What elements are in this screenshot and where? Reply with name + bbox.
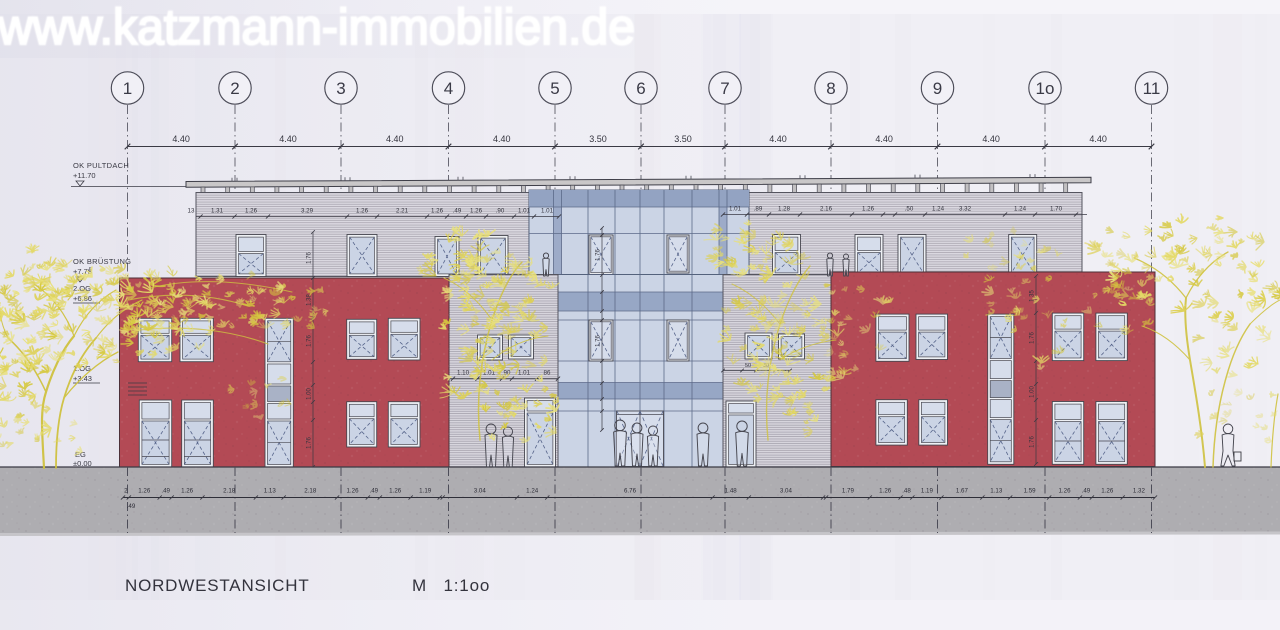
svg-text:3.50: 3.50 — [674, 134, 692, 144]
svg-text:1.26: 1.26 — [879, 488, 892, 495]
svg-text:1.48: 1.48 — [725, 488, 738, 495]
svg-text:.49: .49 — [127, 503, 136, 510]
svg-text:4.40: 4.40 — [172, 134, 190, 144]
svg-text:OK PULTDACH: OK PULTDACH — [73, 161, 129, 170]
svg-text:1.76: 1.76 — [596, 335, 602, 347]
svg-text:3.04: 3.04 — [474, 488, 487, 495]
svg-text:4.40: 4.40 — [982, 134, 1000, 144]
svg-text:1.26: 1.26 — [389, 488, 402, 495]
svg-text:4.40: 4.40 — [769, 134, 787, 144]
svg-text:1.59: 1.59 — [1024, 488, 1037, 495]
svg-text:1.24: 1.24 — [1014, 206, 1027, 213]
svg-text:1.26: 1.26 — [245, 208, 258, 215]
svg-text:1.76: 1.76 — [1030, 332, 1036, 344]
svg-text:3.32: 3.32 — [959, 206, 972, 213]
svg-text:1.01: 1.01 — [518, 208, 531, 215]
svg-text:3.29: 3.29 — [301, 208, 314, 215]
svg-text:.50: .50 — [905, 206, 914, 213]
svg-text:7: 7 — [720, 79, 729, 98]
svg-text:6.76: 6.76 — [624, 488, 637, 495]
svg-text:1.28: 1.28 — [778, 206, 791, 213]
svg-text:1.13: 1.13 — [990, 488, 1003, 495]
svg-text:9: 9 — [933, 79, 942, 98]
svg-text:1.26: 1.26 — [346, 488, 359, 495]
svg-text:2: 2 — [124, 488, 128, 495]
svg-text:1.10: 1.10 — [457, 370, 470, 377]
svg-text:1.26: 1.26 — [470, 208, 483, 215]
svg-text:4: 4 — [444, 79, 453, 98]
svg-text:1.24: 1.24 — [526, 488, 539, 495]
svg-text:1.26: 1.26 — [138, 488, 151, 495]
svg-text:OK BRÜSTUNG: OK BRÜSTUNG — [73, 257, 131, 266]
svg-text:1.01: 1.01 — [541, 208, 554, 215]
svg-text:www.katzmann-immobilien.de: www.katzmann-immobilien.de — [0, 0, 635, 55]
svg-text:1.26: 1.26 — [1058, 488, 1071, 495]
svg-text:1.00: 1.00 — [307, 388, 313, 400]
svg-text:1.19: 1.19 — [921, 488, 934, 495]
svg-text:.89: .89 — [754, 206, 763, 213]
svg-text:.49: .49 — [161, 488, 170, 495]
svg-text:1o: 1o — [1036, 79, 1055, 98]
svg-text:5: 5 — [550, 79, 559, 98]
svg-text:1.26: 1.26 — [862, 206, 875, 213]
svg-text:1.26: 1.26 — [1101, 488, 1114, 495]
svg-text:2.18: 2.18 — [304, 488, 317, 495]
svg-text:2: 2 — [230, 79, 239, 98]
svg-text:11: 11 — [1143, 79, 1161, 98]
svg-text:1.24: 1.24 — [932, 206, 945, 213]
svg-text:1.26: 1.26 — [181, 488, 194, 495]
svg-text:4.40: 4.40 — [1089, 134, 1107, 144]
svg-text:1.01: 1.01 — [518, 370, 531, 377]
svg-text:3: 3 — [336, 79, 345, 98]
svg-text:M 1:1oo: M 1:1oo — [412, 576, 490, 595]
svg-text:1.76: 1.76 — [307, 252, 313, 264]
svg-text:1.19: 1.19 — [419, 488, 432, 495]
svg-text:1.70: 1.70 — [1050, 206, 1063, 213]
svg-text:.90: .90 — [496, 208, 505, 215]
svg-text:1: 1 — [123, 79, 132, 98]
svg-text:8: 8 — [826, 79, 835, 98]
svg-text:1.79: 1.79 — [842, 488, 855, 495]
svg-text:1.76: 1.76 — [307, 335, 313, 347]
svg-text:1.76: 1.76 — [596, 249, 602, 261]
svg-text:1.67: 1.67 — [956, 488, 969, 495]
svg-text:6: 6 — [636, 79, 645, 98]
svg-text:4.40: 4.40 — [875, 134, 893, 144]
svg-text:1.00: 1.00 — [1030, 386, 1036, 398]
svg-text:3.04: 3.04 — [780, 488, 793, 495]
svg-text:2.16: 2.16 — [820, 206, 833, 213]
svg-text:86: 86 — [544, 370, 551, 377]
svg-text:2.21: 2.21 — [396, 208, 409, 215]
svg-text:1.26: 1.26 — [431, 208, 444, 215]
svg-text:4.40: 4.40 — [493, 134, 511, 144]
svg-text:3.50: 3.50 — [589, 134, 607, 144]
svg-text:13: 13 — [188, 208, 195, 215]
svg-text:.49: .49 — [1082, 488, 1091, 495]
svg-text:.49: .49 — [369, 488, 378, 495]
svg-text:1.01: 1.01 — [729, 206, 742, 213]
svg-text:.48: .48 — [902, 488, 911, 495]
svg-text:4.40: 4.40 — [279, 134, 297, 144]
svg-text:NORDWESTANSICHT: NORDWESTANSICHT — [125, 576, 310, 595]
svg-text:+11.70: +11.70 — [73, 171, 96, 180]
svg-text:1.32: 1.32 — [1133, 488, 1146, 495]
svg-text:1.26: 1.26 — [356, 208, 369, 215]
svg-text:1.76: 1.76 — [1030, 436, 1036, 448]
svg-text:1.31: 1.31 — [211, 208, 224, 215]
svg-text:2.18: 2.18 — [223, 488, 236, 495]
svg-text:.49: .49 — [453, 208, 462, 215]
svg-text:4.40: 4.40 — [386, 134, 404, 144]
svg-text:1.13: 1.13 — [264, 488, 277, 495]
svg-text:50: 50 — [745, 363, 751, 369]
svg-text:1.76: 1.76 — [307, 437, 313, 449]
